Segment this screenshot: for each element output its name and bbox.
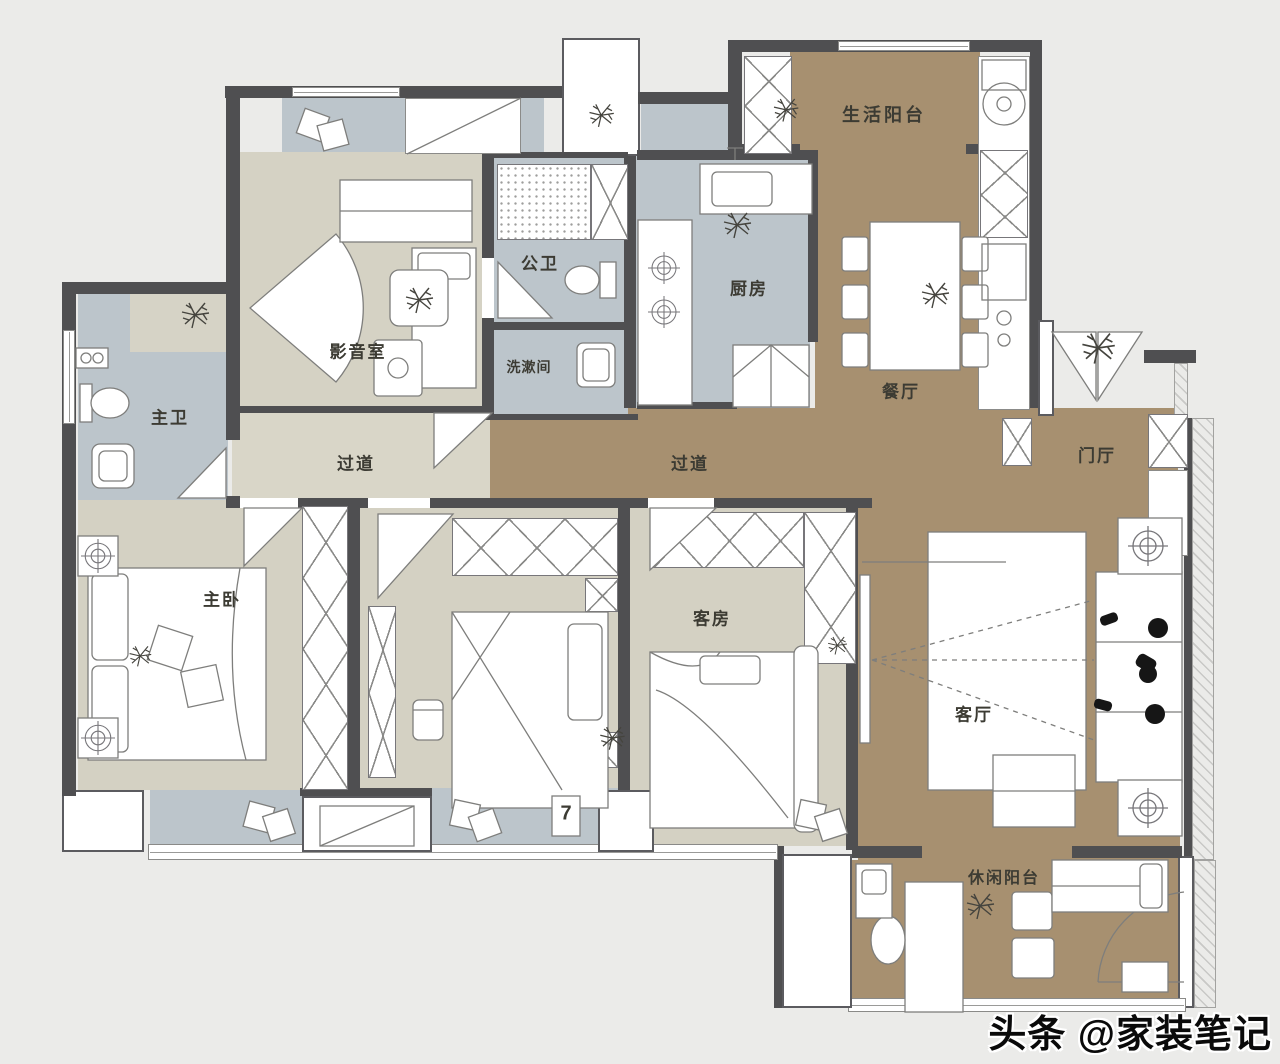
label-guest-room: 客房: [693, 605, 731, 630]
label-public-bath: 公卫: [521, 250, 559, 275]
master-bath-fixtures: [76, 348, 134, 488]
kitchen-furniture: [638, 148, 812, 407]
floor-plan: 生活阳台 厨房 公卫 洗漱间 影音室 主卫 过道 过道 餐厅 门厅 主卧 客房 …: [0, 0, 1280, 1064]
furniture-layer: [0, 0, 1280, 1064]
label-corridor-west: 过道: [337, 450, 375, 475]
label-leisure-balcony: 休闲阳台: [968, 864, 1040, 888]
watermark: 头条 @家装笔记: [988, 1003, 1272, 1058]
label-life-balcony: 生活阳台: [842, 101, 926, 127]
label-media-room: 影音室: [330, 338, 387, 363]
label-master-bath: 主卫: [151, 404, 189, 429]
label-kitchen: 厨房: [730, 275, 768, 300]
label-washroom: 洗漱间: [507, 357, 552, 377]
public-bath-fixtures: [565, 262, 616, 387]
label-dining: 餐厅: [882, 378, 920, 403]
marker-7: 7: [560, 803, 571, 826]
second-bedroom-furniture: [413, 612, 608, 808]
living-room-furniture: [860, 518, 1182, 836]
label-master-bedroom: 主卧: [203, 586, 241, 611]
label-corridor-east: 过道: [671, 450, 709, 475]
master-bedroom-furniture: [78, 536, 266, 760]
label-living-room: 客厅: [955, 701, 993, 726]
guest-room-furniture: [650, 646, 818, 832]
label-foyer: 门厅: [1078, 442, 1116, 467]
